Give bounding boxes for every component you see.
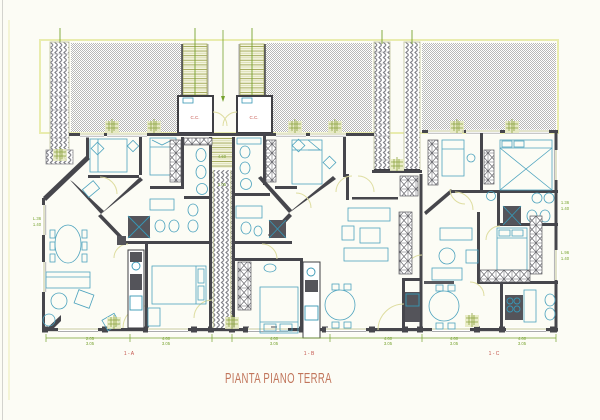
- svg-text:1.40: 1.40: [561, 256, 570, 261]
- svg-text:C.C.: C.C.: [191, 115, 200, 120]
- svg-text:L.36: L.36: [33, 216, 42, 221]
- svg-text:1 - C: 1 - C: [489, 351, 500, 357]
- svg-text:1.36: 1.36: [561, 200, 570, 205]
- svg-text:L.96: L.96: [561, 250, 570, 255]
- svg-text:C.C.: C.C.: [250, 115, 259, 120]
- svg-text:3.05: 3.05: [270, 341, 279, 346]
- svg-text:3.05: 3.05: [86, 341, 95, 346]
- svg-text:1.40: 1.40: [33, 222, 42, 227]
- svg-text:3.05: 3.05: [384, 341, 393, 346]
- svg-text:1 - B: 1 - B: [304, 351, 315, 357]
- svg-text:3.05: 3.05: [450, 341, 459, 346]
- svg-text:4.60: 4.60: [218, 154, 227, 159]
- svg-text:1 - A: 1 - A: [124, 351, 135, 357]
- svg-text:3.05: 3.05: [162, 341, 171, 346]
- svg-text:1.05: 1.05: [218, 182, 227, 187]
- svg-text:1.40: 1.40: [561, 206, 570, 211]
- svg-text:PIANTA PIANO TERRA: PIANTA PIANO TERRA: [225, 370, 333, 387]
- svg-text:3.05: 3.05: [518, 341, 527, 346]
